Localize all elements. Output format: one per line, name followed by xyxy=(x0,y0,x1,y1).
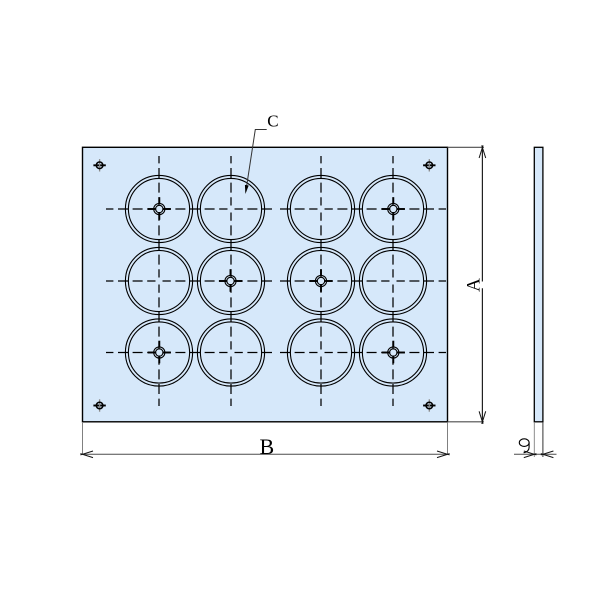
svg-text:B: B xyxy=(260,434,275,459)
svg-text:C: C xyxy=(267,111,278,130)
svg-text:A: A xyxy=(464,278,485,292)
